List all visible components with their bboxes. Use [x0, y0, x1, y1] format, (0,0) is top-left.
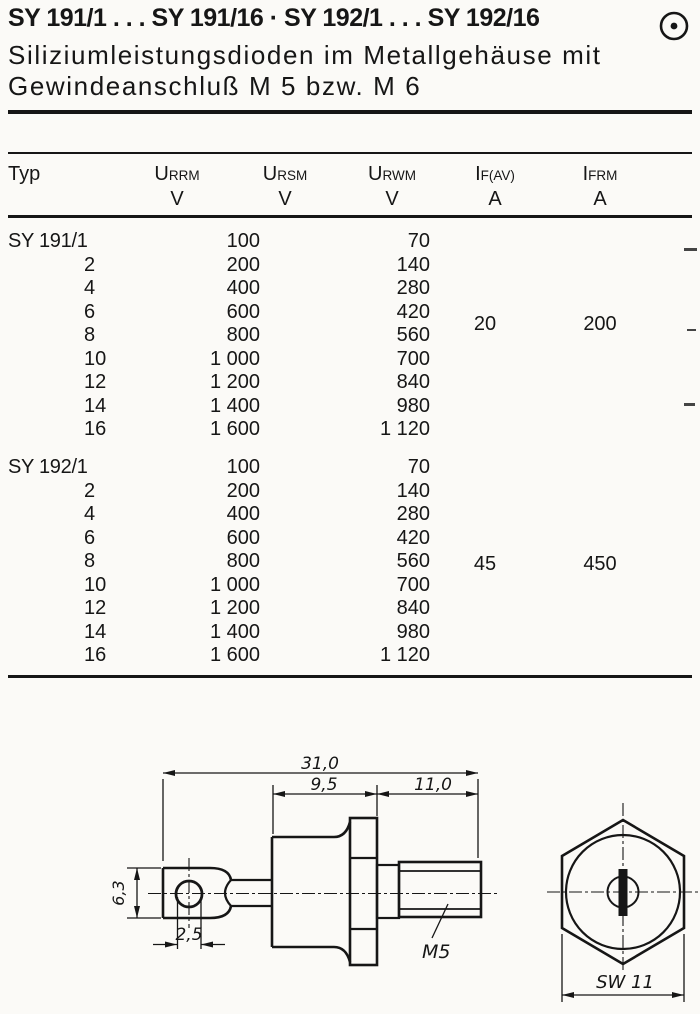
- cell-urrm-ursm: 600: [150, 527, 260, 551]
- cell-typ: 6: [84, 527, 95, 551]
- cell-urwm: 140: [318, 254, 430, 278]
- ifrm-unit: A: [558, 188, 642, 211]
- cell-urrm-ursm: 600: [150, 301, 260, 325]
- table-row: 141 400980: [0, 621, 700, 645]
- cell-urwm: 140: [318, 480, 430, 504]
- ifav-unit: A: [453, 188, 537, 211]
- cell-urwm: 70: [318, 230, 430, 254]
- cell-urwm: 420: [318, 301, 430, 325]
- cell-typ: 8: [84, 550, 95, 574]
- column-header-ursm: URSM V: [243, 162, 327, 211]
- cell-urrm-ursm: 1 200: [150, 597, 260, 621]
- cell-urrm-ursm: 1 400: [150, 621, 260, 645]
- cell-typ: SY 192/1: [8, 456, 88, 480]
- column-header-urrm: URRM V: [135, 162, 219, 211]
- cell-urwm: 280: [318, 503, 430, 527]
- table-row: SY 191/110070: [0, 230, 700, 254]
- cell-urrm-ursm: 400: [150, 277, 260, 301]
- cell-typ: 8: [84, 324, 95, 348]
- scan-artifact: [684, 403, 695, 406]
- page-subtitle: Siliziumleistungsdioden im Metallgehäuse…: [8, 40, 668, 102]
- ifrm-subscript: FRM: [588, 168, 617, 183]
- dim-stud-length: 11,0: [414, 775, 452, 795]
- urwm-unit: V: [350, 188, 434, 211]
- divider-thick: [8, 110, 692, 114]
- cell-urrm-ursm: 1 600: [150, 418, 260, 442]
- cell-urrm-ursm: 1 200: [150, 371, 260, 395]
- sy191-ifrm-value: 200: [560, 312, 640, 336]
- ursm-base: U: [263, 163, 277, 185]
- table-row: 2200140: [0, 480, 700, 504]
- sy192-ifav-value: 45: [446, 552, 524, 576]
- dim-tab-height: 6,3: [109, 880, 128, 905]
- table-row: 2200140: [0, 254, 700, 278]
- cell-urwm: 420: [318, 527, 430, 551]
- cell-typ: 16: [84, 418, 106, 442]
- circled-dot-icon: [658, 10, 692, 44]
- subtitle-line-2: Gewindeanschluß M 5 bzw. M 6: [8, 71, 668, 102]
- cell-urrm-ursm: 1 000: [150, 574, 260, 598]
- sy191-ifav-value: 20: [446, 312, 524, 336]
- cell-typ: 12: [84, 371, 106, 395]
- scan-artifact: [684, 248, 697, 251]
- table-row: 121 200840: [0, 597, 700, 621]
- cell-typ: 14: [84, 395, 106, 419]
- table-row: 161 6001 120: [0, 418, 700, 442]
- dim-hole-diameter: 2,5: [175, 925, 202, 945]
- scan-artifact: [687, 329, 696, 331]
- dim-wrench-size: SW 11: [596, 972, 654, 993]
- urrm-base: U: [154, 163, 168, 185]
- urrm-unit: V: [135, 188, 219, 211]
- cell-urwm: 980: [318, 621, 430, 645]
- column-header-ifav: IF(AV) A: [453, 162, 537, 211]
- page-title: SY 191/1 . . . SY 191/16 · SY 192/1 . . …: [8, 4, 648, 33]
- table-row: 141 400980: [0, 395, 700, 419]
- typ-label: Typ: [8, 162, 40, 186]
- table-row: 4400280: [0, 503, 700, 527]
- cell-urrm-ursm: 100: [150, 456, 260, 480]
- sy192-ifrm-value: 450: [560, 552, 640, 576]
- cell-urwm: 700: [318, 348, 430, 372]
- cell-urrm-ursm: 100: [150, 230, 260, 254]
- cell-urwm: 980: [318, 395, 430, 419]
- cell-urwm: 1 120: [318, 418, 430, 442]
- cell-typ: 12: [84, 597, 106, 621]
- urrm-subscript: RRM: [169, 168, 200, 183]
- datasheet-page: SY 191/1 . . . SY 191/16 · SY 192/1 . . …: [0, 0, 700, 1014]
- cell-typ: 10: [84, 348, 106, 372]
- cell-typ: 16: [84, 644, 106, 668]
- table-row: 101 000700: [0, 574, 700, 598]
- table-row: SY 192/110070: [0, 456, 700, 480]
- cell-urrm-ursm: 800: [150, 550, 260, 574]
- table-row: 6600420: [0, 527, 700, 551]
- column-header-urwm: URWM V: [350, 162, 434, 211]
- ursm-unit: V: [243, 188, 327, 211]
- table-bottom-rule: [8, 675, 692, 678]
- cell-urwm: 840: [318, 597, 430, 621]
- cell-urrm-ursm: 1 000: [150, 348, 260, 372]
- dim-body-length: 9,5: [310, 775, 337, 795]
- package-outline-drawing: 31,0 9,5 11,0 6,3 2,5 M5 SW 11: [80, 740, 700, 1012]
- table-row: 101 000700: [0, 348, 700, 372]
- cell-typ: 2: [84, 480, 95, 504]
- thread-size-label: M5: [422, 941, 450, 963]
- cell-typ: 2: [84, 254, 95, 278]
- urwm-base: U: [368, 163, 382, 185]
- cell-urrm-ursm: 200: [150, 480, 260, 504]
- subtitle-line-1: Siliziumleistungsdioden im Metallgehäuse…: [8, 40, 668, 71]
- cell-urrm-ursm: 1 400: [150, 395, 260, 419]
- cell-urrm-ursm: 1 600: [150, 644, 260, 668]
- cell-urrm-ursm: 800: [150, 324, 260, 348]
- cell-urwm: 560: [318, 324, 430, 348]
- ursm-subscript: RSM: [277, 168, 307, 183]
- cell-urwm: 280: [318, 277, 430, 301]
- dim-total-length: 31,0: [301, 754, 339, 774]
- table-header-rule: [8, 215, 692, 218]
- cell-typ: 4: [84, 277, 95, 301]
- cell-typ: 4: [84, 503, 95, 527]
- column-header-typ: Typ: [8, 162, 40, 186]
- column-header-ifrm: IFRM A: [558, 162, 642, 211]
- cell-urwm: 840: [318, 371, 430, 395]
- cell-typ: SY 191/1: [8, 230, 88, 254]
- table-top-rule: [8, 152, 692, 154]
- table-row: 161 6001 120: [0, 644, 700, 668]
- cell-typ: 10: [84, 574, 106, 598]
- end-view-centerlines: [547, 803, 700, 970]
- table-row: 121 200840: [0, 371, 700, 395]
- cell-urwm: 70: [318, 456, 430, 480]
- ifav-subscript: F(AV): [481, 168, 515, 183]
- cell-urrm-ursm: 400: [150, 503, 260, 527]
- urwm-subscript: RWM: [382, 168, 416, 183]
- cell-urwm: 560: [318, 550, 430, 574]
- cell-urwm: 1 120: [318, 644, 430, 668]
- cell-urwm: 700: [318, 574, 430, 598]
- cell-typ: 14: [84, 621, 106, 645]
- cell-urrm-ursm: 200: [150, 254, 260, 278]
- cell-typ: 6: [84, 301, 95, 325]
- table-row: 4400280: [0, 277, 700, 301]
